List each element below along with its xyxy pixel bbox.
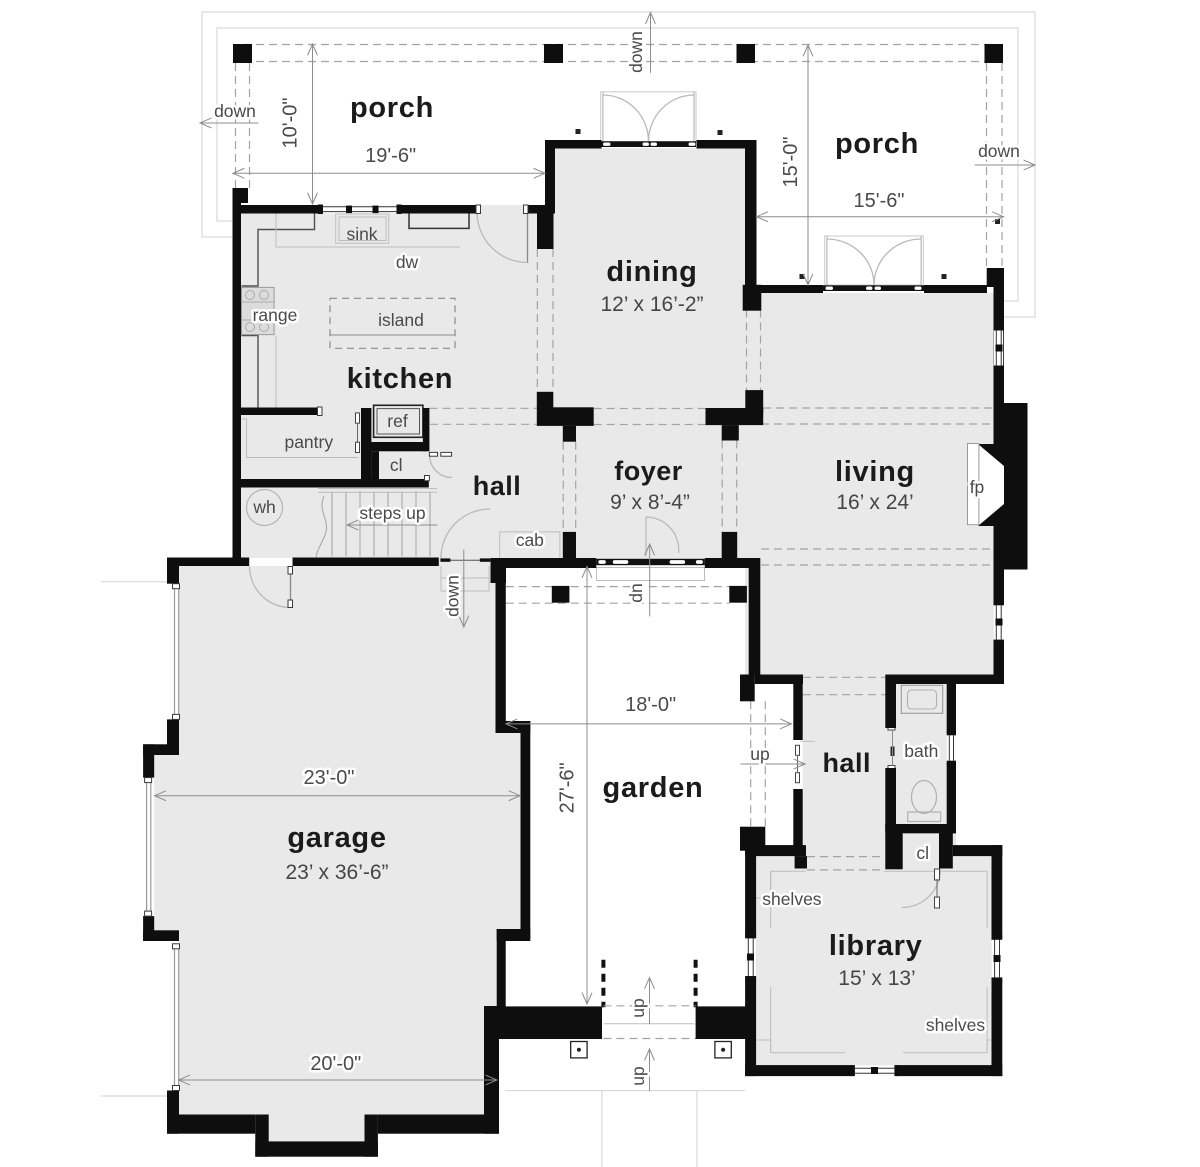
svg-text:18'-0": 18'-0"	[625, 694, 676, 716]
svg-text:sink: sink	[346, 224, 377, 244]
svg-text:kitchen: kitchen	[347, 363, 453, 395]
svg-text:16’ x 24’: 16’ x 24’	[836, 491, 913, 514]
svg-text:porch: porch	[835, 128, 919, 160]
svg-text:cl: cl	[390, 455, 403, 475]
svg-text:23'-0": 23'-0"	[304, 767, 355, 789]
svg-text:hall: hall	[822, 748, 871, 778]
svg-text:15'-0": 15'-0"	[780, 137, 802, 188]
svg-text:shelves: shelves	[762, 889, 822, 909]
svg-text:fp: fp	[970, 477, 985, 497]
svg-text:dining: dining	[606, 256, 697, 288]
svg-text:dw: dw	[396, 252, 419, 272]
svg-text:cl: cl	[916, 843, 929, 863]
svg-text:porch: porch	[350, 92, 434, 124]
svg-text:wh: wh	[252, 497, 275, 517]
svg-text:12’ x 16’-2”: 12’ x 16’-2”	[600, 293, 703, 316]
svg-text:range: range	[253, 305, 298, 325]
svg-text:10'-0": 10'-0"	[280, 98, 302, 149]
svg-text:15'-6": 15'-6"	[854, 190, 905, 212]
svg-text:pantry: pantry	[284, 432, 333, 452]
svg-text:living: living	[835, 456, 915, 488]
svg-text:steps up: steps up	[359, 503, 425, 523]
svg-text:15’ x 13’: 15’ x 13’	[838, 967, 915, 990]
svg-text:dn: dn	[626, 583, 646, 602]
svg-text:hall: hall	[473, 471, 522, 501]
svg-text:bath: bath	[904, 741, 938, 761]
svg-text:island: island	[378, 310, 424, 330]
svg-text:down: down	[214, 101, 256, 121]
svg-text:27'-6": 27'-6"	[557, 762, 579, 813]
svg-text:garden: garden	[603, 772, 704, 804]
svg-text:down: down	[978, 141, 1020, 161]
svg-text:foyer: foyer	[614, 456, 683, 486]
svg-text:up: up	[628, 1066, 648, 1085]
svg-text:down: down	[626, 31, 646, 73]
svg-text:library: library	[829, 930, 923, 962]
svg-text:garage: garage	[287, 822, 386, 854]
svg-text:up: up	[628, 998, 648, 1017]
svg-text:9’ x 8’-4”: 9’ x 8’-4”	[610, 491, 690, 514]
svg-text:19'-6": 19'-6"	[365, 145, 416, 167]
svg-text:20'-0": 20'-0"	[310, 1053, 361, 1075]
svg-text:23’ x 36’-6”: 23’ x 36’-6”	[285, 861, 388, 884]
svg-text:up: up	[750, 744, 769, 764]
svg-text:shelves: shelves	[926, 1015, 986, 1035]
svg-text:ref: ref	[387, 411, 408, 431]
svg-text:cab: cab	[516, 530, 544, 550]
svg-text:down: down	[443, 575, 463, 617]
